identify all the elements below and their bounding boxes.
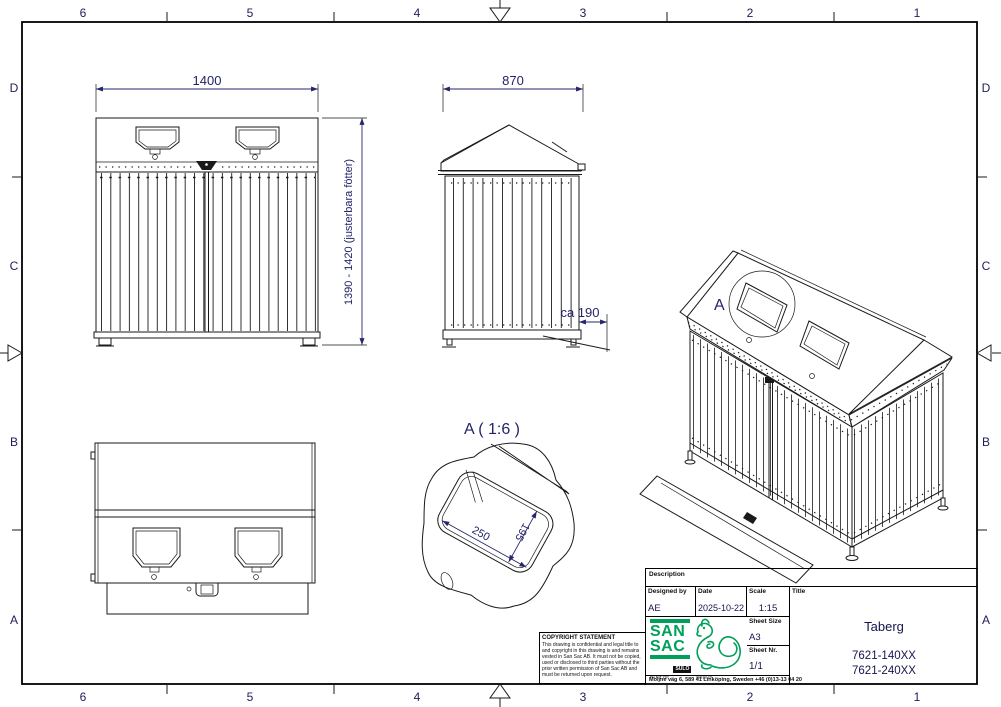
- scale-label: Scale: [749, 588, 766, 595]
- isometric-view: A: [640, 250, 952, 583]
- copyright-heading: COPYRIGHT STATEMENT: [542, 635, 643, 641]
- svg-text:ca 190: ca 190: [560, 305, 599, 320]
- grid-row-label: B: [10, 435, 18, 449]
- designed-by-label: Designed by: [648, 588, 687, 595]
- center-mark-top: [490, 0, 510, 22]
- grid-col-label: 1: [914, 690, 921, 704]
- sulo-badge: SULO: [673, 666, 691, 673]
- part-number: 7621-240XX: [790, 664, 978, 679]
- front-height-dimension: 1390 - 1420 (justerbara fötter): [322, 118, 367, 345]
- description-cell: Description: [646, 569, 977, 587]
- detail-height-dimension: 195: [501, 507, 540, 564]
- svg-text:870: 870: [502, 73, 524, 88]
- grid-col-label: 4: [414, 6, 421, 20]
- part-number: 7621-140XX: [790, 649, 978, 664]
- date-cell: Date 2025-10-22: [696, 587, 747, 617]
- grid-col-label: 1: [914, 6, 921, 20]
- squirrel-icon: [688, 615, 746, 671]
- logo-text-san: SAN: [650, 624, 690, 639]
- company-address: Moljne väg 6, 589 41 Linköping, Sweden +…: [646, 676, 789, 683]
- date-value: 2025-10-22: [698, 603, 744, 613]
- grid-row-label: A: [982, 613, 990, 627]
- grid-row-label: C: [982, 259, 991, 273]
- grid-row-label: D: [10, 81, 19, 95]
- logo-text-sac: SAC: [650, 639, 690, 654]
- logo-cell: SAN SAC PART OF SULO GROUP: [646, 617, 747, 676]
- date-label: Date: [698, 588, 712, 595]
- detail-a-view: A ( 1:6 ) 250 195: [422, 421, 574, 608]
- sheet-nr-value: 1/1: [749, 661, 763, 672]
- copyright-box: COPYRIGHT STATEMENT This drawing is conf…: [539, 632, 646, 684]
- designed-by-value: AE: [648, 603, 661, 614]
- grid-row-label: D: [982, 81, 991, 95]
- top-view: [91, 443, 315, 614]
- detail-callout-label: A: [714, 297, 725, 314]
- title-block: Description Designed by AE Date 2025-10-…: [645, 568, 978, 685]
- svg-text:195: 195: [512, 521, 531, 543]
- sheet-size-cell: Sheet Size A3: [747, 617, 790, 646]
- title-cell: Title Taberg 7621-140XX 7621-240XX: [790, 587, 978, 685]
- part-of-sulo-group: PART OF SULO GROUP: [650, 666, 712, 674]
- copyright-body: This drawing is confidential and legal t…: [542, 642, 643, 678]
- side-view: 870 ca 190: [438, 73, 610, 352]
- address-cell: Moljne väg 6, 589 41 Linköping, Sweden +…: [646, 676, 790, 685]
- svg-text:1390 - 1420 (justerbara fötter: 1390 - 1420 (justerbara fötter): [343, 159, 355, 305]
- front-width-dimension: 1400: [96, 73, 318, 112]
- grid-col-label: 5: [247, 690, 254, 704]
- grid-row-label: B: [982, 435, 990, 449]
- grid-row-label: C: [10, 259, 19, 273]
- grid-col-label: 2: [747, 690, 754, 704]
- grid-col-label: 6: [80, 690, 87, 704]
- sheet-size-value: A3: [749, 632, 761, 643]
- sheet-size-label: Sheet Size: [749, 618, 782, 625]
- side-width-dimension: 870: [443, 73, 583, 112]
- designed-by-cell: Designed by AE: [646, 587, 696, 617]
- center-mark-bottom: [490, 684, 510, 707]
- svg-text:1400: 1400: [193, 73, 222, 88]
- sansac-logo: SAN SAC: [650, 619, 690, 659]
- svg-text:250: 250: [470, 524, 492, 543]
- sheet-nr-cell: Sheet Nr. 1/1: [747, 646, 790, 676]
- grid-col-label: 3: [580, 690, 587, 704]
- center-mark-right: [977, 345, 1001, 361]
- scale-value: 1:15: [747, 603, 789, 614]
- front-view: 1400 1390 - 1420 (justerbara fötter: [94, 73, 367, 346]
- drawing-title: Taberg: [790, 619, 978, 634]
- sheet-nr-label: Sheet Nr.: [749, 647, 777, 654]
- grid-col-label: 2: [747, 6, 754, 20]
- description-label: Description: [649, 571, 685, 578]
- center-mark-left: [0, 345, 22, 361]
- grid-col-label: 6: [80, 6, 87, 20]
- title-label: Title: [792, 588, 805, 595]
- grid-col-label: 5: [247, 6, 254, 20]
- scale-cell: Scale 1:15: [747, 587, 790, 617]
- grid-col-label: 4: [414, 690, 421, 704]
- drawing-page: { "sheet": { "grid": { "cols": ["6","5",…: [0, 0, 1001, 707]
- detail-title: A ( 1:6 ): [464, 421, 520, 438]
- grid-col-label: 3: [580, 6, 587, 20]
- grid-row-label: A: [10, 613, 18, 627]
